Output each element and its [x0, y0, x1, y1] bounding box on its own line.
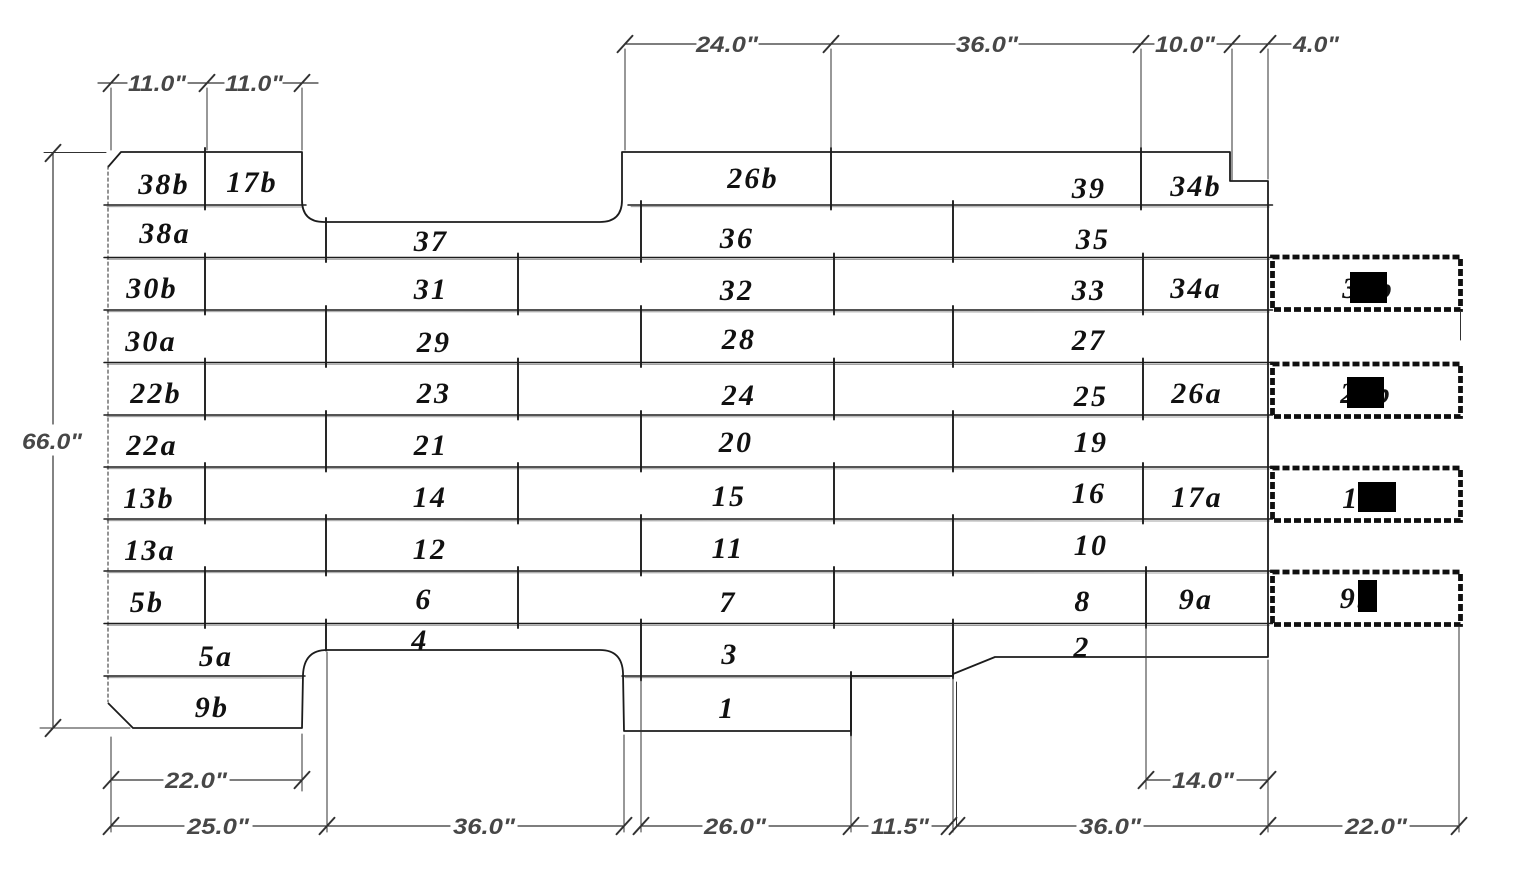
svg-text:26a: 26a — [1170, 377, 1223, 410]
svg-text:26b: 26b — [726, 162, 779, 195]
svg-text:26.0": 26.0" — [703, 814, 767, 839]
svg-text:38b: 38b — [137, 168, 190, 201]
svg-text:22a: 22a — [125, 429, 178, 462]
svg-text:9b: 9b — [195, 691, 229, 724]
svg-text:7: 7 — [719, 586, 736, 619]
svg-text:33: 33 — [1071, 274, 1106, 307]
svg-text:5a: 5a — [199, 640, 233, 673]
svg-text:29: 29 — [416, 326, 451, 359]
svg-text:17b: 17b — [226, 166, 278, 199]
svg-text:19: 19 — [1074, 426, 1108, 459]
svg-text:13b: 13b — [123, 482, 175, 515]
svg-text:10.0": 10.0" — [1155, 32, 1216, 57]
svg-text:36.0": 36.0" — [1079, 814, 1142, 839]
svg-text:23: 23 — [416, 377, 451, 410]
svg-text:14: 14 — [413, 481, 447, 514]
svg-text:22.0": 22.0" — [1344, 814, 1408, 839]
svg-text:4: 4 — [410, 624, 428, 657]
svg-text:66.0": 66.0" — [22, 429, 83, 454]
svg-text:22.0": 22.0" — [164, 768, 228, 793]
svg-text:12: 12 — [413, 533, 447, 566]
svg-text:24: 24 — [721, 379, 756, 412]
svg-text:1: 1 — [718, 692, 735, 725]
svg-text:34b: 34b — [1169, 170, 1222, 203]
svg-text:13a: 13a — [124, 534, 176, 567]
svg-text:36.0": 36.0" — [956, 32, 1019, 57]
svg-text:27: 27 — [1071, 324, 1106, 357]
svg-text:25: 25 — [1073, 380, 1108, 413]
svg-text:3: 3 — [720, 638, 738, 671]
svg-text:36.0": 36.0" — [453, 814, 516, 839]
svg-text:36: 36 — [719, 222, 754, 255]
svg-text:6: 6 — [415, 583, 432, 616]
svg-text:10: 10 — [1074, 529, 1108, 562]
svg-text:14.0": 14.0" — [1172, 768, 1235, 793]
svg-text:17a: 17a — [1171, 481, 1223, 514]
svg-text:24.0": 24.0" — [695, 32, 759, 57]
svg-text:11: 11 — [712, 532, 745, 565]
svg-text:2: 2 — [1072, 631, 1090, 664]
svg-text:21: 21 — [413, 429, 448, 462]
svg-text:38a: 38a — [138, 217, 191, 250]
svg-text:15: 15 — [712, 480, 746, 513]
svg-text:11.0": 11.0" — [225, 71, 284, 96]
svg-text:28: 28 — [721, 323, 756, 356]
svg-text:34a: 34a — [1169, 272, 1222, 305]
svg-text:25.0": 25.0" — [186, 814, 250, 839]
svg-text:30b: 30b — [125, 272, 178, 305]
svg-text:35: 35 — [1075, 223, 1110, 256]
svg-text:32: 32 — [719, 274, 754, 307]
svg-text:5b: 5b — [130, 586, 164, 619]
svg-text:39: 39 — [1071, 172, 1106, 205]
svg-text:30a: 30a — [124, 325, 177, 358]
svg-text:22b: 22b — [129, 377, 182, 410]
svg-text:16: 16 — [1072, 477, 1106, 510]
svg-text:31: 31 — [413, 273, 448, 306]
svg-text:37: 37 — [413, 225, 448, 258]
svg-text:20: 20 — [718, 426, 753, 459]
svg-text:11.0": 11.0" — [128, 71, 187, 96]
svg-text:9a: 9a — [1179, 583, 1213, 616]
svg-text:11.5": 11.5" — [871, 814, 930, 839]
svg-text:8: 8 — [1074, 585, 1091, 618]
svg-text:4.0": 4.0" — [1292, 32, 1340, 57]
